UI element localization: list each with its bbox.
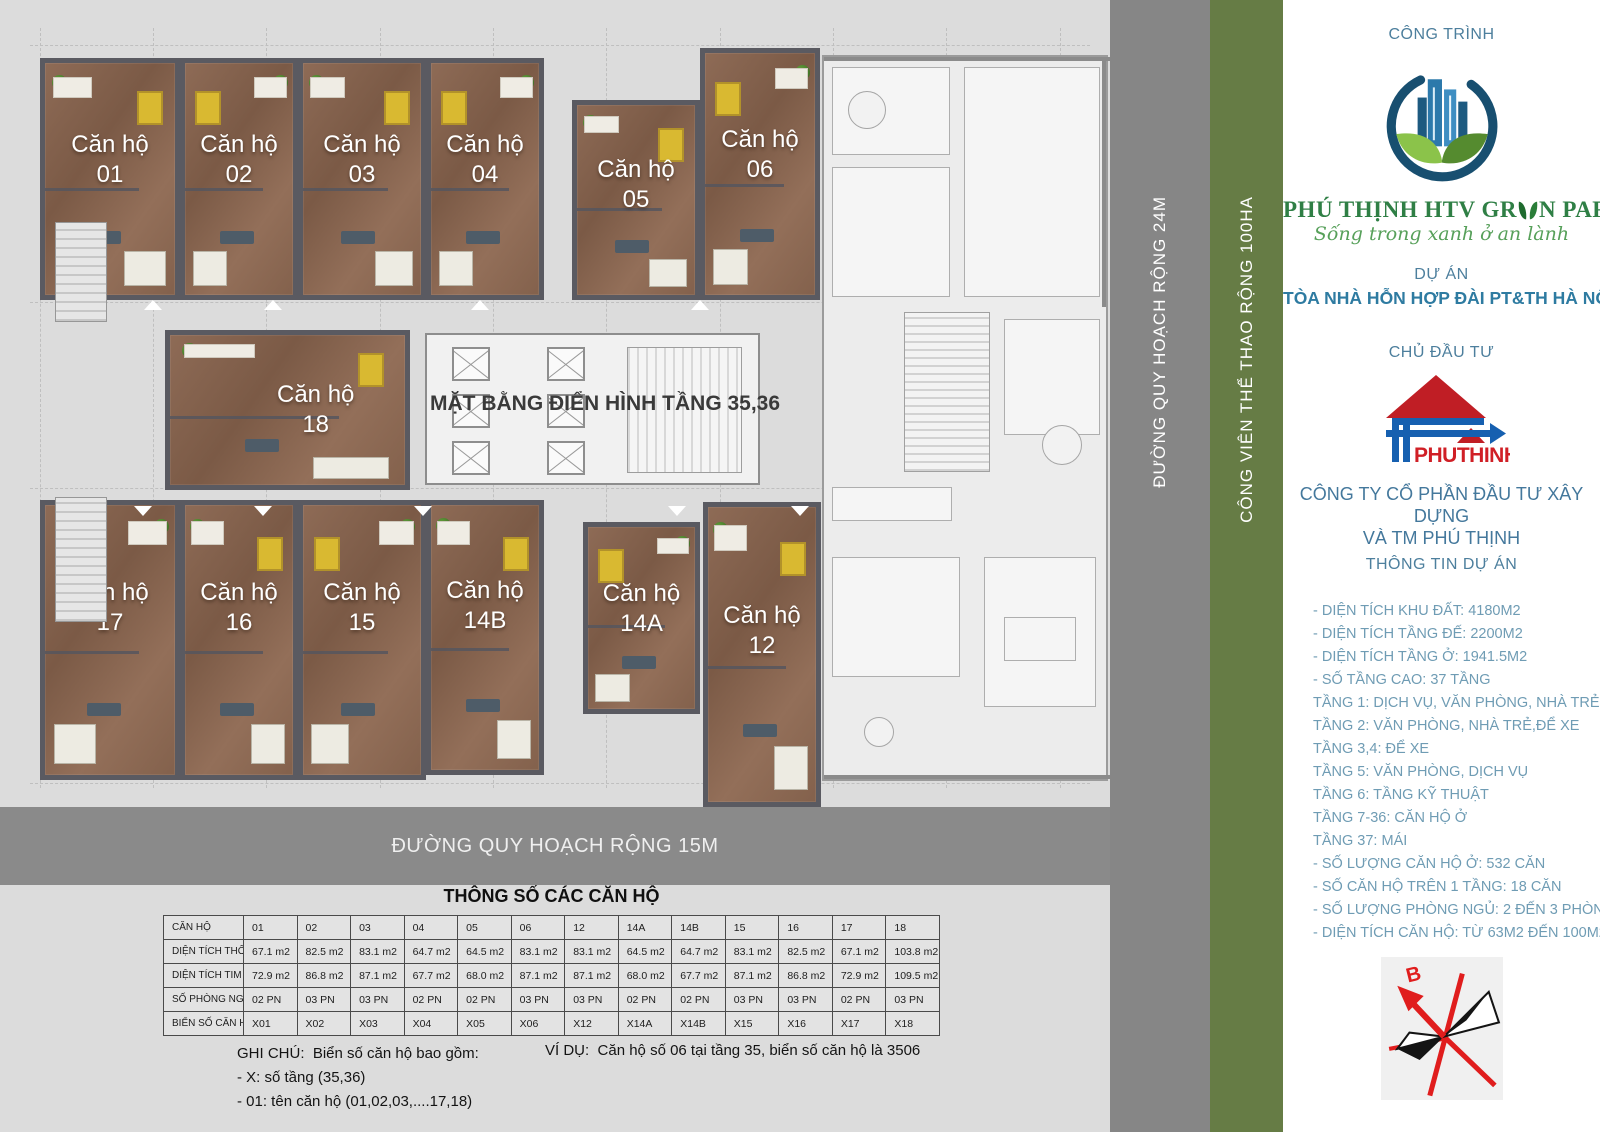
spec-cell: 64.5 m2 <box>458 940 512 964</box>
info-item: - DIỆN TÍCH CĂN HỘ: TỪ 63M2 ĐẾN 100M2 <box>1313 922 1600 945</box>
sofa-icon <box>220 703 254 716</box>
spec-cell: 03 <box>351 916 405 940</box>
outline-shape <box>1102 57 1106 307</box>
strip-icon <box>714 525 746 552</box>
spec-cell: 03 PN <box>511 988 565 1012</box>
park-strip: CÔNG VIÊN THỂ THAO RỘNG 100HA <box>1210 0 1283 1132</box>
bath-icon <box>774 746 809 790</box>
brand-name: PHÚ THỊNH HTV GRN PARK <box>1283 197 1600 223</box>
spec-cell: 03 PN <box>565 988 619 1012</box>
spec-cell: 01 <box>244 916 298 940</box>
unit-04: Căn hộ04 <box>426 58 544 300</box>
spec-cell: 02 PN <box>618 988 672 1012</box>
spec-cell: 82.5 m2 <box>297 940 351 964</box>
spec-cell: 03 PN <box>297 988 351 1012</box>
sofa-icon <box>466 231 500 244</box>
strip-icon <box>657 538 689 554</box>
spec-cell: 72.9 m2 <box>244 964 298 988</box>
info-item: - DIỆN TÍCH KHU ĐẤT: 4180M2 <box>1313 600 1600 623</box>
investor-logo-icon: PHUTHINH <box>1374 372 1510 478</box>
bath-icon <box>54 724 96 765</box>
vi-du-text: Căn hộ số 06 tại tầng 35, biển số căn hộ… <box>598 1042 921 1059</box>
note-ghi-chu: GHI CHÚ: Biển số căn hộ bao gồm: - X: số… <box>237 1042 479 1114</box>
strip-icon <box>128 521 167 545</box>
unit-label: Căn hộ01 <box>71 130 148 190</box>
line-icon <box>45 651 139 654</box>
spec-cell: 03 PN <box>886 988 940 1012</box>
spec-table-row: SỐ PHÒNG NGỦ02 PN03 PN03 PN02 PN02 PN03 … <box>164 988 940 1012</box>
unit-label: Căn hộ05 <box>597 155 674 215</box>
brochure-page: Căn hộ01Căn hộ02Căn hộ03Căn hộ04Căn hộ05… <box>0 0 1600 1132</box>
brand-tagline: Sống trong xanh ở an lành <box>1283 223 1600 245</box>
strip-icon <box>500 77 532 98</box>
project-heading: DỰ ÁN <box>1283 266 1600 284</box>
strip-icon <box>437 521 469 545</box>
spec-table-row: DIỆN TÍCH THÔNG THỦY67.1 m282.5 m283.1 m… <box>164 940 940 964</box>
sofa-icon <box>220 231 254 244</box>
spec-cell: 109.5 m2 <box>886 964 940 988</box>
spec-cell: X14B <box>672 1012 726 1036</box>
grid-line <box>30 783 1090 784</box>
spec-cell: 02 <box>297 916 351 940</box>
spec-cell: X15 <box>725 1012 779 1036</box>
line-icon <box>303 651 388 654</box>
bath-icon <box>439 251 474 286</box>
brand-name-pre: PHÚ THỊNH HTV GR <box>1283 197 1517 222</box>
spec-cell: 67.7 m2 <box>672 964 726 988</box>
unit-label: Căn hộ04 <box>446 130 523 190</box>
strip-icon <box>184 344 255 358</box>
spec-cell: 67.1 m2 <box>832 940 886 964</box>
spec-cell: 02 PN <box>832 988 886 1012</box>
spec-cell: 72.9 m2 <box>832 964 886 988</box>
entrance-arrow <box>791 506 809 516</box>
bed-icon <box>137 91 163 125</box>
project-name: TÒA NHÀ HỖN HỢP ĐÀI PT&TH HÀ NỘI <box>1283 288 1600 309</box>
unit-label: Căn hộ18 <box>277 380 354 440</box>
outline-shape <box>964 67 1100 297</box>
outline-shape <box>1004 319 1100 435</box>
spec-row-label: CĂN HỘ <box>164 916 244 940</box>
park-strip-label: CÔNG VIÊN THỂ THAO RỘNG 100HA <box>1237 196 1257 523</box>
bath-icon <box>595 674 629 701</box>
bed-icon <box>195 91 221 125</box>
project-info-list: - DIỆN TÍCH KHU ĐẤT: 4180M2- DIỆN TÍCH T… <box>1313 600 1600 945</box>
adjacent-units-outline <box>822 55 1108 781</box>
spec-cell: 83.1 m2 <box>565 940 619 964</box>
sofa-icon <box>245 439 279 452</box>
note-vi-du: VÍ DỤ: Căn hộ số 06 tại tầng 35, biển số… <box>545 1042 920 1059</box>
bed-icon <box>358 353 384 387</box>
spec-cell: 18 <box>886 916 940 940</box>
spec-row-label: DIỆN TÍCH TIM TƯỜNG <box>164 964 244 988</box>
info-item: TẦNG 7-36: CĂN HỘ Ở <box>1313 807 1600 830</box>
spec-cell: 03 PN <box>725 988 779 1012</box>
stairwell-left-top <box>55 222 107 322</box>
bed-icon <box>441 91 467 125</box>
spec-cell: X01 <box>244 1012 298 1036</box>
investor-name-line2: VÀ TM PHÚ THỊNH <box>1283 527 1600 549</box>
road-bottom-label: ĐƯỜNG QUY HOẠCH RỘNG 15M <box>391 835 718 858</box>
investor-name: CÔNG TY CỔ PHẦN ĐẦU TƯ XÂY DỰNG VÀ TM PH… <box>1283 483 1600 549</box>
road-bar-bottom: ĐƯỜNG QUY HOẠCH RỘNG 15M <box>0 807 1110 885</box>
spec-row-label: DIỆN TÍCH THÔNG THỦY <box>164 940 244 964</box>
strip-icon <box>775 68 808 90</box>
spec-table-row: BIỂN SỐ CĂN HỘX01X02X03X04X05X06X12X14AX… <box>164 1012 940 1036</box>
ghi-chu-intro: Biển số căn hộ bao gồm: <box>313 1045 479 1062</box>
info-item: - SỐ CĂN HỘ TRÊN 1 TẦNG: 18 CĂN <box>1313 876 1600 899</box>
bath-icon <box>193 251 228 286</box>
unit-02: Căn hộ02 <box>180 58 298 300</box>
brand-name-post: N PARK <box>1539 197 1600 222</box>
info-heading: THÔNG TIN DỰ ÁN <box>1283 556 1600 574</box>
bed-icon <box>314 537 340 571</box>
spec-cell: 04 <box>404 916 458 940</box>
spec-cell: 87.1 m2 <box>511 964 565 988</box>
spec-cell: 87.1 m2 <box>725 964 779 988</box>
spec-cell: X12 <box>565 1012 619 1036</box>
spec-cell: 83.1 m2 <box>351 940 405 964</box>
sofa-icon <box>622 656 656 669</box>
outline-shape <box>832 487 952 521</box>
bed-icon <box>780 542 806 576</box>
spec-table-row: DIỆN TÍCH TIM TƯỜNG72.9 m286.8 m287.1 m2… <box>164 964 940 988</box>
entrance-arrow <box>144 300 162 310</box>
spec-cell: 02 PN <box>404 988 458 1012</box>
outline-shape <box>1004 617 1076 661</box>
bath-icon <box>649 259 687 288</box>
spec-cell: 02 PN <box>244 988 298 1012</box>
spec-cell: 03 PN <box>779 988 833 1012</box>
unit-label: Căn hộ14B <box>446 576 523 636</box>
spec-cell: X16 <box>779 1012 833 1036</box>
road-side-label: ĐƯỜNG QUY HOẠCH RỘNG 24M <box>1150 196 1170 488</box>
spec-cell: 03 PN <box>351 988 405 1012</box>
spec-cell: 67.7 m2 <box>404 964 458 988</box>
entrance-arrow <box>668 506 686 516</box>
outline-shape <box>904 312 990 472</box>
spec-cell: X17 <box>832 1012 886 1036</box>
spec-cell: 103.8 m2 <box>886 940 940 964</box>
spec-cell: 02 PN <box>458 988 512 1012</box>
compass-box: B <box>1381 957 1503 1100</box>
spec-cell: 12 <box>565 916 619 940</box>
floor-plan-area: Căn hộ01Căn hộ02Căn hộ03Căn hộ04Căn hộ05… <box>0 0 1110 1132</box>
spec-cell: 86.8 m2 <box>297 964 351 988</box>
unit-03: Căn hộ03 <box>298 58 426 300</box>
strip-icon <box>191 521 223 545</box>
spec-cell: 87.1 m2 <box>351 964 405 988</box>
spec-table-title: THÔNG SỐ CÁC CĂN HỘ <box>163 886 940 907</box>
unit-label: Căn hộ16 <box>200 578 277 638</box>
ghi-chu-label: GHI CHÚ: <box>237 1045 305 1062</box>
info-item: TẦNG 3,4: ĐỂ XE <box>1313 738 1600 761</box>
spec-cell: 15 <box>725 916 779 940</box>
info-item: - DIỆN TÍCH TẦNG Ở: 1941.5M2 <box>1313 646 1600 669</box>
entrance-arrow <box>134 506 152 516</box>
spec-cell: 83.1 m2 <box>725 940 779 964</box>
bed-icon <box>384 91 410 125</box>
sofa-icon <box>615 240 649 253</box>
strip-icon <box>310 77 345 98</box>
entrance-arrow <box>691 300 709 310</box>
unit-18: Căn hộ18 <box>165 330 410 490</box>
unit-06: Căn hộ06 <box>700 48 820 300</box>
unit-15: Căn hộ15 <box>298 500 426 780</box>
spec-cell: X18 <box>886 1012 940 1036</box>
spec-cell: 16 <box>779 916 833 940</box>
stairwell-left-bottom <box>55 497 107 622</box>
spec-cell: 86.8 m2 <box>779 964 833 988</box>
spec-row-label: SỐ PHÒNG NGỦ <box>164 988 244 1012</box>
spec-cell: X02 <box>297 1012 351 1036</box>
elevator-cell <box>452 347 490 381</box>
outline-shape <box>1042 425 1082 465</box>
spec-cell: 68.0 m2 <box>618 964 672 988</box>
entrance-arrow <box>254 506 272 516</box>
info-sidebar: CÔNG TRÌNH PHÚ THỊNH HTV GRN PARK Sống t… <box>1283 0 1600 1132</box>
bath-icon <box>375 251 413 286</box>
construction-heading: CÔNG TRÌNH <box>1283 26 1600 44</box>
info-item: TẦNG 2: VĂN PHÒNG, NHÀ TRẺ,ĐỂ XE <box>1313 715 1600 738</box>
spec-cell: X03 <box>351 1012 405 1036</box>
spec-cell: 82.5 m2 <box>779 940 833 964</box>
elevator-cell <box>547 347 585 381</box>
outline-shape <box>832 557 960 677</box>
info-item: - SỐ TẦNG CAO: 37 TẦNG <box>1313 669 1600 692</box>
spec-cell: 05 <box>458 916 512 940</box>
brand-logo-icon <box>1379 62 1505 190</box>
strip-icon <box>379 521 414 545</box>
unit-16: Căn hộ16 <box>180 500 298 780</box>
elevator-cell <box>547 441 585 475</box>
info-item: - DIỆN TÍCH TẦNG ĐẾ: 2200M2 <box>1313 623 1600 646</box>
spec-cell: 06 <box>511 916 565 940</box>
spec-cell: X14A <box>618 1012 672 1036</box>
bed-icon <box>715 82 741 116</box>
unit-label: Căn hộ02 <box>200 130 277 190</box>
spec-table-row: CĂN HỘ0102030405061214A14B15161718 <box>164 916 940 940</box>
outline-shape <box>824 775 1110 779</box>
bath-icon <box>497 720 532 760</box>
leaf-icon <box>1528 202 1539 220</box>
bath-icon <box>713 249 748 285</box>
strip-icon <box>254 77 286 98</box>
leaf-icon <box>1517 202 1528 220</box>
spec-cell: 64.5 m2 <box>618 940 672 964</box>
unit-14A: Căn hộ14A <box>583 522 700 714</box>
line-icon <box>431 648 509 651</box>
investor-name-line1: CÔNG TY CỔ PHẦN ĐẦU TƯ XÂY DỰNG <box>1283 483 1600 527</box>
spec-table: CĂN HỘ0102030405061214A14B15161718DIỆN T… <box>163 915 940 1036</box>
spec-cell: 64.7 m2 <box>404 940 458 964</box>
spec-cell: 83.1 m2 <box>511 940 565 964</box>
line-icon <box>185 651 263 654</box>
entrance-arrow <box>264 300 282 310</box>
sofa-icon <box>87 703 121 716</box>
bath-icon <box>124 251 166 286</box>
entrance-arrow <box>414 506 432 516</box>
bath-icon <box>311 724 349 765</box>
investor-logo-text: PHUTHINH <box>1414 444 1510 467</box>
road-strip-side: ĐƯỜNG QUY HOẠCH RỘNG 24M <box>1110 0 1210 1132</box>
outline-shape <box>848 91 886 129</box>
spec-cell: 14B <box>672 916 726 940</box>
sofa-icon <box>743 724 777 737</box>
compass-north-icon: B <box>1381 957 1503 1100</box>
ghi-chu-line: - X: số tầng (35,36) <box>237 1066 479 1090</box>
vi-du-label: VÍ DỤ: <box>545 1042 589 1059</box>
sofa-icon <box>341 703 375 716</box>
unit-label: Căn hộ03 <box>323 130 400 190</box>
spec-cell: 87.1 m2 <box>565 964 619 988</box>
outline-shape <box>832 167 950 297</box>
unit-label: Căn hộ12 <box>723 601 800 661</box>
info-item: TẦNG 6: TẦNG KỸ THUẬT <box>1313 784 1600 807</box>
info-item: - SỐ LƯỢNG CĂN HỘ Ở: 532 CĂN <box>1313 853 1600 876</box>
outline-shape <box>864 717 894 747</box>
sofa-icon <box>466 699 500 712</box>
unit-label: Căn hộ14A <box>603 579 680 639</box>
bath-icon <box>313 457 388 480</box>
info-item: TẦNG 1: DỊCH VỤ, VĂN PHÒNG, NHÀ TRẺ <box>1313 692 1600 715</box>
unit-14B: Căn hộ14B <box>426 500 544 775</box>
info-item: - SỐ LƯỢNG PHÒNG NGỦ: 2 ĐẾN 3 PHÒNG <box>1313 899 1600 922</box>
strip-icon <box>584 116 619 133</box>
outline-shape <box>824 57 1110 61</box>
spec-cell: 68.0 m2 <box>458 964 512 988</box>
bed-icon <box>503 537 529 571</box>
spec-cell: 64.7 m2 <box>672 940 726 964</box>
ghi-chu-line: - 01: tên căn hộ (01,02,03,....17,18) <box>237 1090 479 1114</box>
grid-line <box>30 45 1090 46</box>
line-icon <box>708 666 786 669</box>
bed-icon <box>257 537 283 571</box>
spec-cell: X06 <box>511 1012 565 1036</box>
spec-row-label: BIỂN SỐ CĂN HỘ <box>164 1012 244 1036</box>
entrance-arrow <box>471 300 489 310</box>
unit-label: Căn hộ06 <box>721 125 798 185</box>
bath-icon <box>251 724 286 765</box>
sofa-icon <box>740 229 774 242</box>
unit-12: Căn hộ12 <box>703 502 821 807</box>
spec-cell: X05 <box>458 1012 512 1036</box>
elevator-cell <box>452 441 490 475</box>
spec-cell: 14A <box>618 916 672 940</box>
spec-cell: 17 <box>832 916 886 940</box>
unit-05: Căn hộ05 <box>572 100 700 300</box>
unit-label: Căn hộ15 <box>323 578 400 638</box>
sofa-icon <box>341 231 375 244</box>
strip-icon <box>53 77 92 98</box>
info-item: TẦNG 37: MÁI <box>1313 830 1600 853</box>
spec-cell: 67.1 m2 <box>244 940 298 964</box>
investor-heading: CHỦ ĐẦU TƯ <box>1283 344 1600 362</box>
info-item: TẦNG 5: VĂN PHÒNG, DỊCH VỤ <box>1313 761 1600 784</box>
spec-cell: X04 <box>404 1012 458 1036</box>
plan-title: MẶT BẰNG ĐIỂN HÌNH TẦNG 35,36 <box>430 392 750 416</box>
compass-north-label: B <box>1404 963 1424 988</box>
bed-icon <box>598 549 624 583</box>
spec-cell: 02 PN <box>672 988 726 1012</box>
